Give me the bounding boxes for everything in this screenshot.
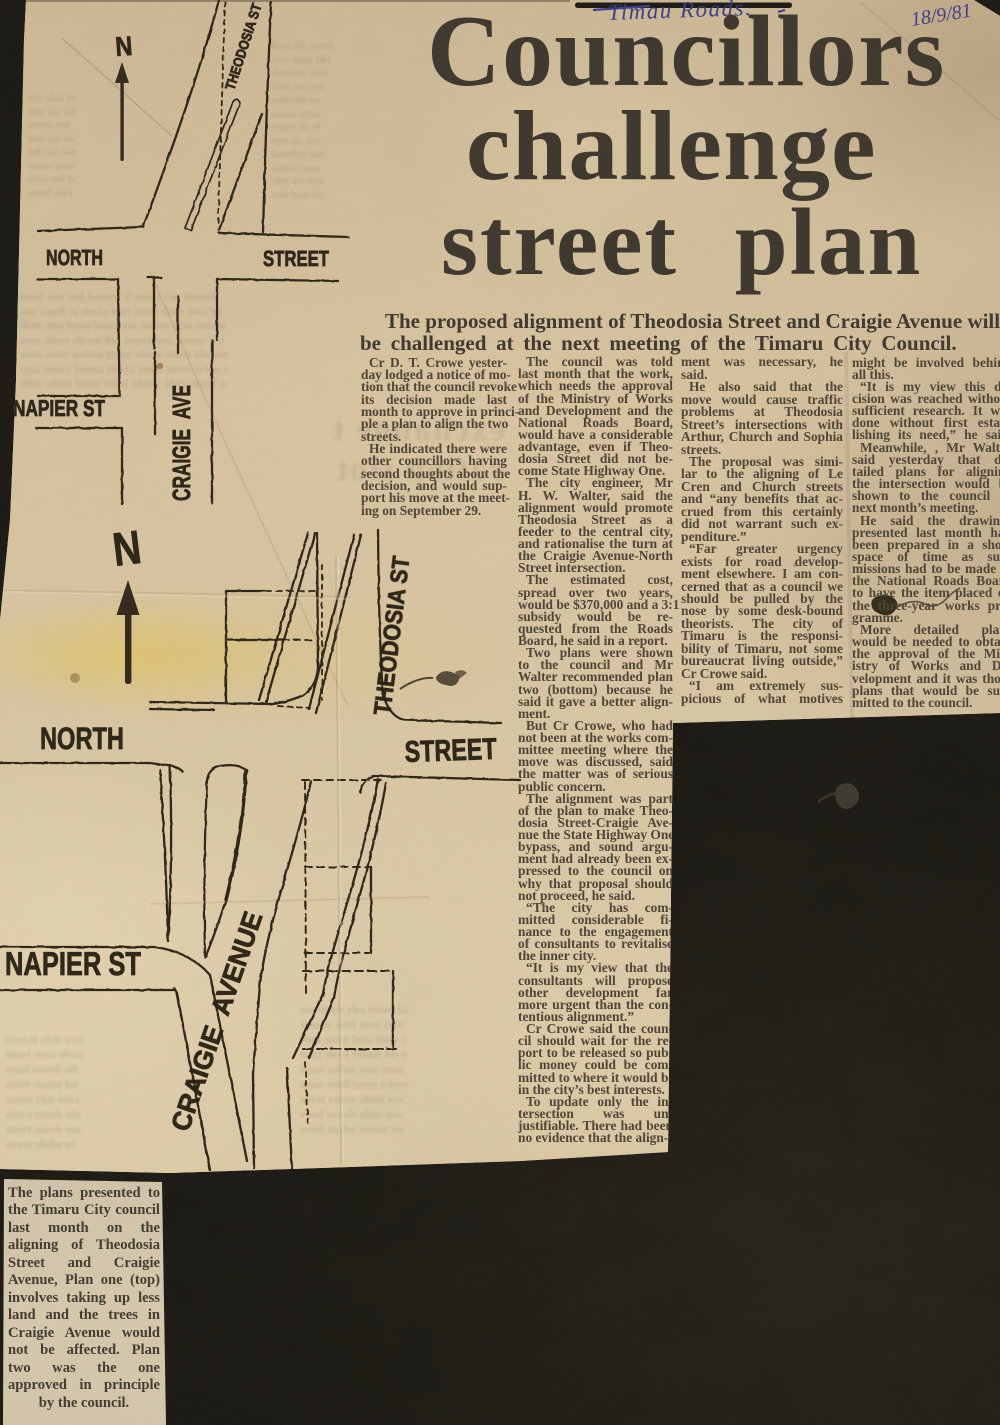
- svg-text:NAPIER ST: NAPIER ST: [13, 395, 105, 421]
- svg-text:STREET: STREET: [263, 246, 329, 271]
- svg-text:NORTH: NORTH: [40, 721, 124, 756]
- svg-text:NORTH: NORTH: [46, 245, 103, 270]
- svg-text:N: N: [110, 520, 144, 576]
- svg-text:STREET: STREET: [404, 733, 497, 769]
- svg-text:NAPIER ST: NAPIER ST: [5, 945, 141, 982]
- svg-text:THEODOSIA ST: THEODOSIA ST: [222, 1, 265, 92]
- svg-text:N: N: [114, 31, 133, 62]
- svg-text:CRAIGIE AVE: CRAIGIE AVE: [168, 385, 196, 501]
- svg-text:THEODOSIA ST: THEODOSIA ST: [369, 554, 415, 716]
